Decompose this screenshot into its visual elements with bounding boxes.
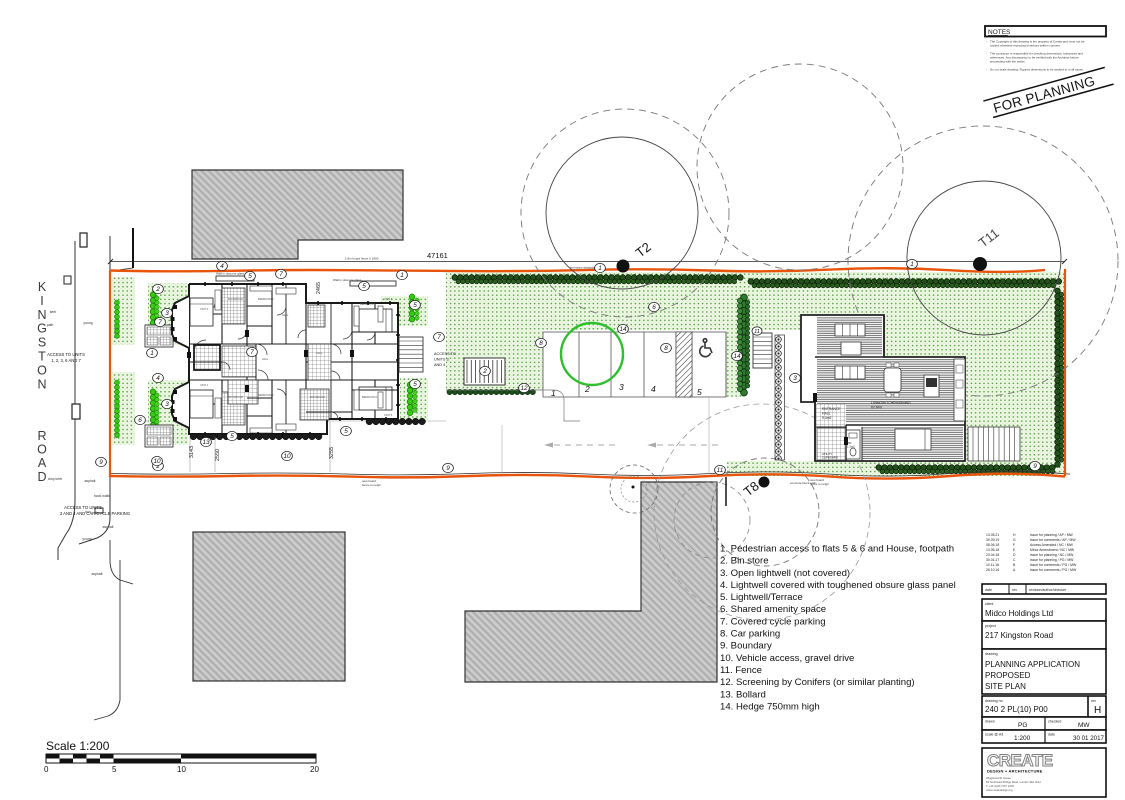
svg-text:asphalt: asphalt [103, 525, 114, 529]
svg-text:ENTRANCE: ENTRANCE [822, 407, 841, 411]
svg-text:NOTES: NOTES [988, 29, 1011, 36]
svg-text:4: 4 [156, 375, 160, 382]
svg-text:7: 7 [250, 349, 254, 356]
svg-text:5: 5 [697, 387, 702, 397]
svg-text:30 01 2017: 30 01 2017 [1073, 735, 1105, 742]
svg-text:-: - [986, 52, 987, 56]
svg-text:13: 13 [202, 439, 210, 446]
svg-text:UNIT 2: UNIT 2 [200, 307, 209, 311]
svg-text:path: path [47, 323, 54, 327]
svg-text:I: I [40, 294, 43, 308]
svg-text:5: 5 [112, 765, 117, 774]
svg-text:DESIGN + ARCHITECTURE: DESIGN + ARCHITECTURE [987, 769, 1043, 774]
svg-text:2: 2 [482, 368, 487, 375]
svg-text:26.10.16: 26.10.16 [986, 568, 999, 572]
svg-text:5: 5 [344, 428, 348, 435]
svg-text:4: 4 [220, 263, 224, 270]
svg-text:MW: MW [1078, 722, 1090, 729]
svg-text:Scale 1:200: Scale 1:200 [46, 739, 110, 753]
svg-text:3 AND 4 AND CAR/CYCLE PARKING: 3 AND 4 AND CAR/CYCLE PARKING [60, 511, 130, 516]
svg-text:8: 8 [664, 345, 668, 352]
svg-text:9: 9 [99, 459, 103, 466]
svg-text:BATHROOM: BATHROOM [228, 297, 243, 301]
svg-text:F: F [1013, 543, 1015, 547]
svg-text:T: +44 (0)20 7407 2336: T: +44 (0)20 7407 2336 [986, 784, 1014, 788]
svg-text:HALL: HALL [282, 313, 289, 317]
svg-text:young: young [82, 537, 91, 541]
svg-text:1: 1 [150, 350, 154, 357]
svg-text:3: 3 [165, 401, 169, 408]
svg-text:5: 5 [248, 273, 252, 280]
svg-text:9: 9 [1033, 463, 1037, 470]
svg-text:7: 7 [279, 271, 283, 278]
svg-text:10: 10 [283, 453, 291, 460]
svg-text:Do not scale drawing. Figured: Do not scale drawing. Figured dimensions… [990, 68, 1084, 72]
svg-text:asphalt: asphalt [92, 572, 103, 576]
svg-text:10: 10 [177, 765, 186, 774]
svg-text:3: 3 [619, 382, 624, 392]
svg-text:BEDROOM 2: BEDROOM 2 [258, 297, 274, 301]
svg-text:Issue for planning / AP / MW: Issue for planning / AP / MW [1030, 533, 1074, 537]
svg-text:14. Hedge 750mm high: 14. Hedge 750mm high [720, 702, 820, 713]
svg-text:drawn: drawn [985, 720, 995, 724]
svg-text:kerb: kerb [50, 310, 57, 314]
svg-text:4. Lightwell covered with toug: 4. Lightwell covered with toughened obsu… [720, 580, 956, 591]
svg-text:H: H [1094, 705, 1101, 716]
svg-text:3143: 3143 [189, 446, 195, 458]
svg-text:AND 4: AND 4 [434, 363, 445, 367]
svg-text:1.2m2: 1.2m2 [847, 445, 855, 449]
svg-text:2. Bin store: 2. Bin store [720, 556, 769, 567]
svg-text:date: date [1048, 733, 1055, 737]
svg-text:HALL: HALL [262, 357, 269, 361]
svg-text:O: O [37, 443, 47, 457]
svg-text:20: 20 [310, 765, 319, 774]
svg-text:12. Screening by Conifers (or: 12. Screening by Conifers (or similar pl… [720, 677, 915, 688]
svg-text:concrete block wall: concrete block wall [790, 481, 816, 485]
svg-text:7: 7 [158, 319, 162, 326]
svg-text:D: D [37, 470, 46, 484]
svg-text:3: 3 [165, 310, 169, 317]
svg-text:drop kerb: drop kerb [48, 477, 62, 481]
svg-text:5: 5 [230, 433, 234, 440]
svg-text:12: 12 [520, 385, 528, 392]
svg-text:S: S [38, 336, 46, 350]
svg-text:240 2 PL(10) P00: 240 2 PL(10) P00 [985, 705, 1048, 714]
svg-text:5: 5 [362, 283, 366, 290]
svg-text:ACCESS TO UNITS: ACCESS TO UNITS [64, 505, 102, 510]
svg-text:K: K [38, 280, 47, 294]
svg-text:SITE PLAN: SITE PLAN [985, 682, 1026, 691]
svg-text:rev: rev [1012, 588, 1017, 592]
svg-text:revision/author/checker: revision/author/checker [1029, 588, 1067, 592]
svg-text:1: 1 [598, 265, 602, 272]
svg-text:G: G [37, 322, 47, 336]
svg-text:CREATE: CREATE [987, 751, 1053, 770]
svg-text:PROPOSED: PROPOSED [985, 671, 1031, 680]
svg-text:young: young [83, 321, 92, 325]
svg-text:Wall in obscure glass: Wall in obscure glass [216, 272, 245, 276]
svg-text:11: 11 [754, 329, 760, 335]
svg-text:-: - [986, 68, 987, 72]
svg-text:UNIT 1: UNIT 1 [200, 383, 209, 387]
svg-text:Wall in obscure glass: Wall in obscure glass [333, 278, 362, 282]
svg-text:11. Fence: 11. Fence [720, 665, 762, 676]
svg-text:date: date [985, 588, 992, 592]
svg-text:-: - [986, 40, 987, 44]
svg-text:HALL: HALL [822, 412, 831, 416]
svg-text:BEDROOM 2: BEDROOM 2 [258, 393, 274, 397]
svg-text:1:200: 1:200 [1014, 735, 1031, 742]
svg-text:www.createdesign.org: www.createdesign.org [986, 788, 1013, 792]
svg-text:LIVING/KITCHEN/DINING: LIVING/KITCHEN/DINING [871, 401, 911, 405]
svg-text:Wigglesworth House,: Wigglesworth House, [986, 776, 1012, 780]
svg-text:project: project [985, 624, 996, 628]
svg-text:62.6m2: 62.6m2 [871, 406, 882, 410]
svg-text:ACCESS TO UNITS: ACCESS TO UNITS [47, 352, 85, 357]
svg-text:Issue for comments / AP / MW: Issue for comments / AP / MW [1030, 538, 1076, 542]
svg-text:3. Open lightwell (not covered: 3. Open lightwell (not covered) [720, 568, 850, 579]
svg-text:8. Car parking: 8. Car parking [720, 629, 780, 640]
svg-text:A: A [38, 456, 47, 470]
svg-text:1: 1 [400, 272, 404, 279]
svg-text:Issue for comments / PG / MW: Issue for comments / PG / MW [1030, 563, 1077, 567]
svg-text:8: 8 [539, 340, 543, 347]
svg-text:ACCESS TO: ACCESS TO [434, 352, 456, 356]
svg-text:10.11.16: 10.11.16 [986, 563, 999, 567]
svg-text:N: N [37, 377, 46, 391]
svg-text:Issue for planning / NC / MW: Issue for planning / NC / MW [1030, 553, 1074, 557]
svg-text:14: 14 [733, 353, 741, 360]
svg-text:UNIT 5: UNIT 5 [384, 413, 393, 417]
svg-text:13.05.21: 13.05.21 [986, 533, 999, 537]
svg-text:13.06.18: 13.06.18 [986, 548, 999, 552]
svg-text:drawing no: drawing no [985, 699, 1003, 703]
svg-text:O: O [37, 363, 47, 377]
svg-text:checked: checked [1048, 720, 1061, 724]
svg-text:6: 6 [138, 417, 142, 424]
svg-text:HALL: HALL [316, 351, 323, 355]
svg-text:5: 5 [413, 302, 417, 309]
svg-text:2: 2 [155, 286, 160, 293]
svg-text:9: 9 [446, 465, 450, 472]
svg-text:BATHROOM: BATHROOM [310, 395, 325, 399]
svg-text:client: client [985, 602, 993, 606]
svg-text:scale @ A3: scale @ A3 [985, 733, 1003, 737]
svg-text:9. Boundary: 9. Boundary [720, 641, 772, 652]
svg-text:Issue for planning / PG / MW: Issue for planning / PG / MW [1030, 558, 1074, 562]
svg-text:69 Southwark Bridge Road, Lond: 69 Southwark Bridge Road, London SE1 9HH [986, 780, 1041, 784]
svg-text:rev: rev [1091, 699, 1096, 703]
svg-text:10: 10 [153, 458, 161, 465]
svg-text:UNIT 4: UNIT 4 [384, 297, 393, 301]
svg-text:proceeding with the works.: proceeding with the works. [990, 60, 1026, 64]
svg-text:4: 4 [651, 384, 656, 394]
svg-text:UNITS 3: UNITS 3 [434, 358, 449, 362]
svg-text:Issue for comments / PG / MW: Issue for comments / PG / MW [1030, 568, 1077, 572]
svg-text:PG: PG [1018, 722, 1027, 729]
svg-text:Midco Holdings Ltd: Midco Holdings Ltd [985, 609, 1053, 618]
svg-text:1.8m board fence h 1800: 1.8m board fence h 1800 [345, 257, 379, 261]
svg-text:08.06.18: 08.06.18 [986, 543, 999, 547]
svg-text:Minor Amendment / NC / MW: Minor Amendment / NC / MW [1030, 548, 1075, 552]
svg-text:drawing: drawing [985, 652, 998, 656]
svg-text:PLANNING APPLICATION: PLANNING APPLICATION [985, 660, 1080, 669]
svg-text:30.01.17: 30.01.17 [986, 558, 999, 562]
svg-text:6: 6 [652, 304, 656, 311]
svg-text:BATHROOM: BATHROOM [228, 395, 243, 399]
svg-text:3: 3 [793, 375, 797, 382]
svg-text:BEDROOM 1: BEDROOM 1 [362, 395, 378, 399]
svg-text:11: 11 [717, 467, 724, 474]
svg-text:CUPBOARD: CUPBOARD [822, 456, 838, 460]
svg-text:0: 0 [44, 765, 49, 774]
svg-text:30.09.19: 30.09.19 [986, 538, 999, 542]
svg-text:N: N [37, 308, 46, 322]
svg-text:7: 7 [437, 334, 441, 341]
svg-text:back walls: back walls [94, 494, 110, 498]
svg-text:1. Pedestrian access to flats: 1. Pedestrian access to flats 5 & 6 and … [720, 544, 954, 555]
svg-text:R: R [37, 429, 46, 443]
svg-text:copied otherwise reproduced wi: copied otherwise reproduced without writ… [990, 44, 1061, 48]
svg-text:5. Lightwell/Terrace: 5. Lightwell/Terrace [720, 592, 803, 603]
svg-text:1, 2, 3, 6 AND 7: 1, 2, 3, 6 AND 7 [51, 358, 81, 363]
svg-text:13. Bollard: 13. Bollard [720, 689, 766, 700]
svg-text:217 Kingston Road: 217 Kingston Road [985, 631, 1053, 640]
svg-text:10. Vehicle access, gravel dri: 10. Vehicle access, gravel drive [720, 653, 854, 664]
svg-text:7. Covered cycle parking: 7. Covered cycle parking [720, 616, 826, 627]
svg-text:G: G [1013, 538, 1016, 542]
svg-text:asphalt: asphalt [85, 479, 96, 483]
svg-text:2465: 2465 [316, 282, 322, 294]
svg-text:fence to neigh: fence to neigh [362, 483, 381, 487]
svg-text:5: 5 [413, 381, 417, 388]
svg-text:2550: 2550 [215, 449, 221, 461]
svg-text:47161: 47161 [427, 251, 448, 260]
svg-text:14: 14 [619, 326, 627, 333]
svg-text:1: 1 [910, 261, 914, 268]
svg-text:6. Shared amenity space: 6. Shared amenity space [720, 604, 826, 615]
svg-text:9.4m2: 9.4m2 [822, 416, 832, 420]
svg-text:3255: 3255 [329, 447, 335, 459]
svg-text:Access Amended / NC / MW: Access Amended / NC / MW [1030, 543, 1074, 547]
svg-text:23.04.18: 23.04.18 [986, 553, 999, 557]
svg-text:1: 1 [551, 388, 556, 398]
svg-text:T: T [38, 350, 46, 364]
